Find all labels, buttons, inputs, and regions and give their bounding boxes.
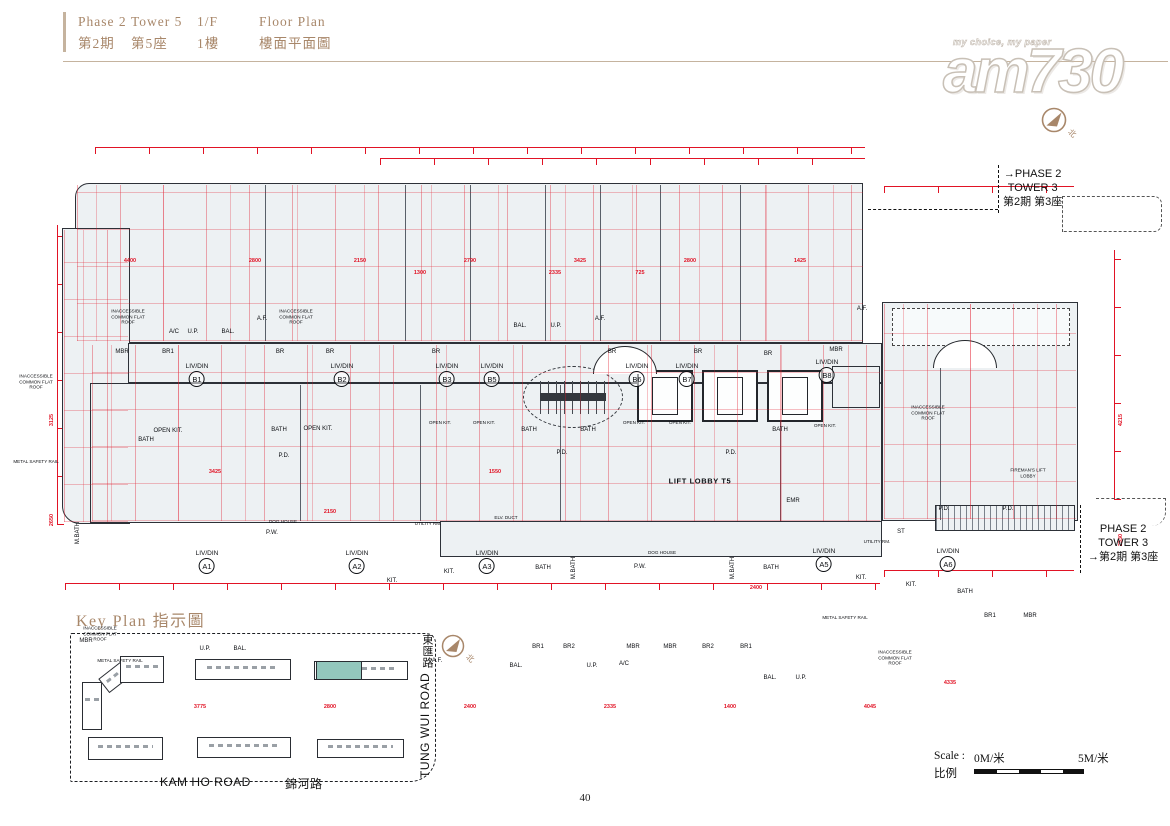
unit-number-circle: A1: [199, 558, 215, 574]
callout-tower3-top: →PHASE 2 TOWER 3 第2期 第3座: [1003, 168, 1062, 209]
dimension-value: 3775: [194, 704, 206, 710]
callout-line: 第2期 第3座: [1099, 551, 1158, 563]
room-label: BATH: [535, 565, 551, 571]
livdin-label: LIV/DIN: [481, 363, 504, 370]
adjacent-tower-outline: [1062, 196, 1162, 232]
unit-label: LIV/DINA1: [196, 550, 219, 574]
am730-logo-text: am730: [943, 36, 1121, 107]
room-label: KIT.: [856, 575, 866, 581]
dimension-value: 1550: [489, 469, 501, 475]
room-label: MBR: [829, 347, 842, 353]
room-label: LIFT LOBBY T5: [669, 477, 732, 486]
unit-number-circle: B8: [819, 367, 835, 383]
staircase: [523, 366, 623, 428]
unit-divider: [545, 185, 546, 341]
room-label: BATH: [957, 589, 973, 595]
unit-number-circle: B5: [484, 371, 500, 387]
unit-divider: [405, 185, 406, 341]
dimension-value: 2400: [750, 585, 762, 591]
room-label: BAL.: [221, 329, 234, 335]
room-label: UTILITY RM.: [405, 521, 451, 527]
page-number: 40: [565, 792, 605, 804]
room-label: P.D.: [279, 453, 290, 459]
unit-number-circle: B3: [439, 371, 455, 387]
arrow-right-icon: →: [1004, 168, 1015, 180]
room-label: KIT.: [387, 578, 397, 584]
key-plan-building: [88, 737, 163, 760]
unit-label: LIV/DINA6: [937, 548, 960, 572]
room-label: BR1: [532, 644, 544, 650]
room-label: U.P.: [200, 646, 211, 652]
room-label: OPEN KIT.: [153, 428, 182, 434]
unit-divider: [300, 385, 301, 521]
dimension-value: 2650: [49, 514, 55, 526]
boundary-dashed-line: [998, 165, 999, 213]
room-label: BR1: [162, 349, 174, 355]
room-label: INACCESSIBLE COMMON FLAT ROOF: [273, 308, 319, 325]
room-label: BATH: [138, 437, 154, 443]
dimension-value: 1425: [794, 258, 806, 264]
room-label: METAL SAFETY RAIL: [13, 459, 59, 465]
dimension-value: 2790: [464, 258, 476, 264]
dimension-value: 1400: [724, 704, 736, 710]
page-title-floor-zh: 1樓: [197, 32, 219, 52]
callout-line: PHASE 2: [1015, 168, 1061, 180]
room-label: BR: [694, 349, 702, 355]
room-label: BAL.: [513, 323, 526, 329]
dimension-value: 4215: [1118, 414, 1124, 426]
callout-tower3-bottom: PHASE 2 TOWER 3 →第2期 第3座: [1088, 523, 1158, 564]
dimension-value: 3425: [209, 469, 221, 475]
emr-room: [832, 366, 880, 408]
room-label: BR2: [702, 644, 714, 650]
callout-line: PHASE 2: [1100, 523, 1146, 535]
road-label-tung-wui-en: TUNG WUI ROAD: [418, 673, 432, 778]
unit-number-circle: B1: [189, 371, 205, 387]
dimension-value: 2150: [354, 258, 366, 264]
room-label: BR2: [563, 644, 575, 650]
callout-line: 第2期 第3座: [1003, 196, 1062, 208]
page-title-phase-en: Phase 2: [78, 14, 127, 30]
room-label: P.D.: [1003, 506, 1014, 512]
dimension-rail: [1114, 250, 1121, 500]
room-label: M.BATH: [730, 557, 736, 579]
room-label: A.F.: [257, 316, 267, 322]
room-label: P.W.: [634, 564, 646, 570]
room-label: A/C: [169, 329, 179, 335]
room-label: INACCESSIBLE COMMON FLAT ROOF: [905, 404, 951, 421]
scale-label-en: Scale :: [934, 750, 965, 762]
unit-label: LIV/DINB6: [626, 363, 649, 387]
boundary-dashed-line: [868, 209, 998, 210]
dimension-value: 2150: [324, 509, 336, 515]
dimension-value: 2335: [549, 270, 561, 276]
dimension-rail: [380, 158, 865, 165]
room-label: MBR: [626, 644, 639, 650]
key-plan-building: [317, 739, 404, 758]
room-label: BAL.: [509, 663, 522, 669]
dimension-rail: [95, 147, 865, 154]
room-label: DOG HOUSE: [260, 519, 306, 525]
page-title-phase-zh: 第2期: [78, 32, 115, 52]
arrow-right-icon: →: [1088, 551, 1099, 563]
dimension-value: 2335: [604, 704, 616, 710]
room-label: BAL.: [233, 646, 246, 652]
callout-line: TOWER 3: [1008, 182, 1058, 194]
livdin-label: LIV/DIN: [626, 363, 649, 370]
room-label: OPEN KIT.: [802, 423, 848, 429]
dimension-value: 725: [635, 270, 644, 276]
room-label: BR: [764, 351, 772, 357]
dimension-value: 2400: [464, 704, 476, 710]
road-label-kam-ho-en: KAM HO ROAD: [160, 775, 251, 789]
room-label: U.P.: [188, 329, 199, 335]
header-accent-bar: [63, 12, 66, 52]
room-label: M.BATH: [75, 522, 81, 544]
room-label: BR: [432, 349, 440, 355]
unit-number-circle: A6: [940, 556, 956, 572]
brochure-page: Phase 2 Tower 5 1/F Floor Plan 第2期 第5座 1…: [0, 0, 1170, 826]
unit-label: LIV/DINB3: [436, 363, 459, 387]
scale-min: 0M/米: [974, 750, 1005, 766]
room-label: MBR: [663, 644, 676, 650]
dimension-value: 2800: [684, 258, 696, 264]
room-label: P.D.: [557, 450, 568, 456]
key-plan-highlighted-tower: [316, 661, 362, 680]
room-label: BATH: [772, 427, 788, 433]
room-label: METAL SAFETY RAIL: [97, 658, 143, 664]
room-label: METAL SAFETY RAIL: [822, 615, 868, 621]
livdin-label: LIV/DIN: [436, 363, 459, 370]
room-label: M.BATH: [571, 557, 577, 579]
room-label: MBR: [79, 638, 92, 644]
livdin-label: LIV/DIN: [937, 548, 960, 555]
floor-plan: LIV/DINB1 LIV/DINB2 LIV/DINB3 LIV/DINB5 …: [0, 120, 1170, 620]
unit-label: LIV/DINB8: [816, 359, 839, 383]
room-label: A.F.: [857, 306, 867, 312]
lift-shaft: [767, 370, 823, 422]
livdin-label: LIV/DIN: [186, 363, 209, 370]
room-label: OPEN KIT.: [657, 420, 703, 426]
room-label: INACCESSIBLE COMMON FLAT ROOF: [105, 308, 151, 325]
room-label: A/C: [619, 661, 629, 667]
unit-label: LIV/DINB5: [481, 363, 504, 387]
dimension-value: 3425: [574, 258, 586, 264]
room-label: KIT.: [906, 582, 916, 588]
callout-line: TOWER 3: [1098, 537, 1148, 549]
page-title-plan-en: Floor Plan: [259, 14, 326, 30]
key-plan-building: [197, 737, 291, 758]
unit-divider: [740, 185, 741, 341]
room-label: ST: [897, 529, 905, 535]
page-title-tower-zh: 第5座: [131, 32, 168, 52]
room-label: ELV. DUCT: [483, 515, 529, 521]
key-plan-building: [195, 659, 291, 680]
scale-bar: [974, 769, 1084, 774]
room-label: BATH: [271, 427, 287, 433]
room-label: BATH: [580, 427, 596, 433]
livdin-label: LIV/DIN: [816, 359, 839, 366]
room-label: BAL.: [763, 675, 776, 681]
page-title-floor-en: 1/F: [197, 14, 218, 30]
key-plan-building: [82, 682, 102, 730]
room-label: BR1: [740, 644, 752, 650]
unit-number-circle: A3: [479, 558, 495, 574]
dimension-value: 4335: [944, 680, 956, 686]
room-label: U.P.: [796, 675, 807, 681]
livdin-label: LIV/DIN: [813, 548, 836, 555]
room-label: BR: [276, 349, 284, 355]
unit-number-circle: B7: [679, 371, 695, 387]
dimension-rail: [884, 570, 1074, 577]
room-label: U.P.: [551, 323, 562, 329]
dimension-value: 1300: [414, 270, 426, 276]
room-label: UTILITY RM.: [854, 539, 900, 545]
page-title-tower-en: Tower 5: [131, 14, 182, 30]
room-label: MBR: [115, 349, 128, 355]
room-label: OPEN KIT.: [461, 420, 507, 426]
unit-label: LIV/DINA2: [346, 550, 369, 574]
unit-number-circle: B6: [629, 371, 645, 387]
unit-number-circle: B2: [334, 371, 350, 387]
livdin-label: LIV/DIN: [476, 550, 499, 557]
tower-bottom-wing-outline: [90, 383, 882, 523]
unit-label: LIV/DINB7: [676, 363, 699, 387]
room-label: OPEN KIT.: [611, 420, 657, 426]
room-label: P.D.: [939, 506, 950, 512]
livdin-label: LIV/DIN: [196, 550, 219, 557]
dimension-value: 4045: [864, 704, 876, 710]
unit-divider: [660, 185, 661, 341]
dimension-value: 2800: [249, 258, 261, 264]
unit-divider: [940, 350, 941, 520]
room-label: BR1: [984, 613, 996, 619]
dimension-value: 4400: [124, 258, 136, 264]
room-label: A.F.: [432, 658, 442, 664]
room-label: P.W.: [266, 530, 278, 536]
dimension-value: 2800: [324, 704, 336, 710]
room-label: KIT.: [444, 569, 454, 575]
room-label: A.F.: [595, 316, 605, 322]
room-label: OPEN KIT.: [303, 426, 332, 432]
room-label: INACCESSIBLE COMMON FLAT ROOF: [13, 373, 59, 390]
livdin-label: LIV/DIN: [331, 363, 354, 370]
unit-label: LIV/DINA5: [813, 548, 836, 572]
boundary-dashed-line: [1080, 505, 1081, 573]
unit-number-circle: A5: [816, 556, 832, 572]
unit-divider: [420, 385, 421, 521]
flat-roof-dashed-outline: [892, 308, 1070, 346]
scale-max: 5M/米: [1078, 750, 1109, 766]
unit-label: LIV/DINB1: [186, 363, 209, 387]
road-label-kam-ho-zh: 錦河路: [285, 775, 323, 792]
unit-label: LIV/DINB2: [331, 363, 354, 387]
unit-number-circle: A2: [349, 558, 365, 574]
key-plan-compass-icon: 北: [440, 633, 484, 673]
scale-label-zh: 比例: [934, 765, 957, 781]
adjacent-tower-outline: [1096, 498, 1166, 526]
compass-glyph: [440, 633, 468, 661]
am730-watermark: my choice, my paper am730: [935, 28, 1170, 118]
room-label: P.D.: [726, 450, 737, 456]
room-label: BR: [326, 349, 334, 355]
room-label: BATH: [521, 427, 537, 433]
dimension-value: 3125: [49, 414, 55, 426]
room-label: MBR: [1023, 613, 1036, 619]
room-label: FIREMAN'S LIFT LOBBY: [1005, 467, 1051, 478]
room-label: INACCESSIBLE COMMON FLAT ROOF: [872, 649, 918, 666]
room-label: BATH: [763, 565, 779, 571]
room-label: U.P.: [587, 663, 598, 669]
unit-label: LIV/DINA3: [476, 550, 499, 574]
room-label: EMR: [786, 498, 799, 504]
room-label: BR: [608, 349, 616, 355]
livdin-label: LIV/DIN: [676, 363, 699, 370]
livdin-label: LIV/DIN: [346, 550, 369, 557]
lift-shaft: [702, 370, 758, 422]
room-label: DOG HOUSE: [639, 550, 685, 556]
room-label: OPEN KIT.: [417, 420, 463, 426]
page-title-plan-zh: 樓面平面圖: [259, 32, 332, 52]
